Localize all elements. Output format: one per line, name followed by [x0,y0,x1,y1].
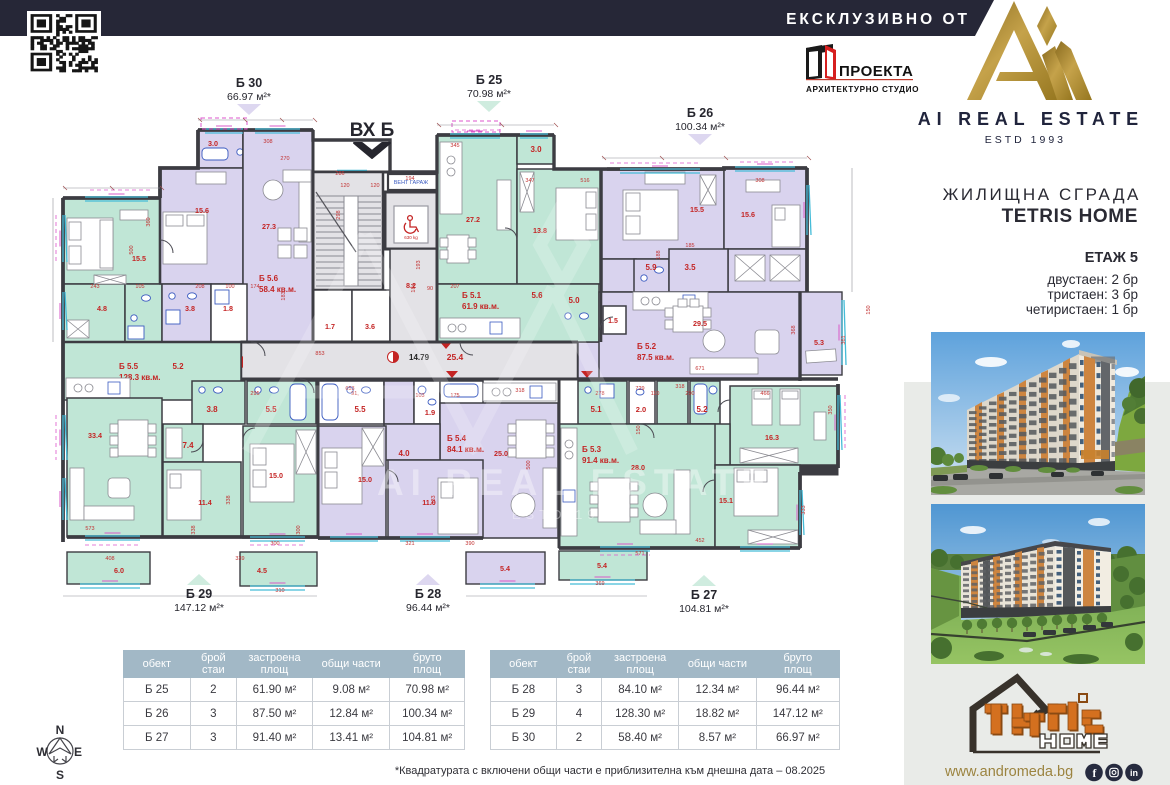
svg-text:6.0: 6.0 [114,566,124,575]
svg-text:Б 25: Б 25 [476,73,502,87]
svg-text:338: 338 [191,525,197,534]
svg-text:15.6: 15.6 [195,206,209,215]
svg-text:5.3: 5.3 [814,338,824,347]
svg-text:188: 188 [656,250,662,259]
svg-text:90: 90 [427,286,433,292]
svg-text:Б 28: Б 28 [415,587,441,601]
svg-text:4.0: 4.0 [398,449,410,458]
svg-text:105: 105 [135,284,144,290]
svg-text:W: W [36,745,48,759]
svg-text:194: 194 [405,176,414,182]
svg-text:243: 243 [90,284,99,290]
svg-text:15.0: 15.0 [269,471,283,480]
svg-text:100.34 м²*: 100.34 м²* [675,121,725,133]
svg-text:Б 5.6: Б 5.6 [259,274,279,283]
svg-text:100: 100 [225,284,234,290]
svg-text:571: 571 [635,551,644,557]
svg-text:120: 120 [370,183,379,189]
svg-text:270: 270 [280,156,289,162]
svg-text:174: 174 [250,284,259,290]
svg-text:368: 368 [791,325,797,334]
svg-text:Б 27: Б 27 [691,588,717,602]
svg-text:ВХ Б: ВХ Б [350,120,395,141]
svg-text:318: 318 [515,388,524,394]
svg-text:70.98 м²*: 70.98 м²* [467,88,511,100]
svg-text:3.8: 3.8 [185,304,195,313]
svg-text:347: 347 [525,178,534,184]
svg-text:f: f [1092,768,1096,780]
svg-text:853: 853 [315,351,324,357]
svg-text:361: 361 [841,335,847,344]
svg-text:4.8: 4.8 [97,304,107,313]
svg-text:120: 120 [340,183,349,189]
svg-text:516: 516 [580,178,589,184]
svg-text:185: 185 [685,243,694,249]
svg-text:7.4: 7.4 [182,441,194,450]
svg-text:96.44 м²*: 96.44 м²* [406,602,450,614]
svg-text:S: S [56,768,64,782]
svg-text:4.5: 4.5 [257,566,267,575]
svg-text:Б 30: Б 30 [236,76,262,90]
svg-text:Б 5.3: Б 5.3 [582,445,602,454]
svg-text:27.3: 27.3 [262,222,276,231]
svg-text:29.5: 29.5 [693,319,707,328]
svg-text:2.0: 2.0 [636,405,646,414]
svg-text:5.4: 5.4 [597,561,607,570]
svg-text:25.4: 25.4 [447,352,464,362]
svg-text:318: 318 [675,384,684,390]
svg-text:183: 183 [281,291,287,300]
svg-text:390: 390 [465,541,474,547]
svg-text:308: 308 [263,139,272,145]
svg-text:193: 193 [416,260,422,269]
svg-text:16.3: 16.3 [765,433,779,442]
svg-text:466: 466 [760,391,769,397]
svg-text:630 kg: 630 kg [404,235,418,240]
svg-text:573: 573 [85,526,94,532]
svg-text:300: 300 [270,541,279,547]
svg-text:33.4: 33.4 [88,431,102,440]
svg-text:333: 333 [801,505,807,514]
svg-text:345: 345 [450,143,459,149]
svg-text:369: 369 [595,581,604,587]
svg-text:360: 360 [146,217,152,226]
svg-text:104.81 м²*: 104.81 м²* [679,603,729,615]
svg-text:3.5: 3.5 [684,263,696,272]
svg-text:5.9: 5.9 [645,263,657,272]
svg-text:298: 298 [336,210,342,219]
svg-text:5.2: 5.2 [172,362,184,371]
svg-text:N: N [56,723,65,737]
svg-text:Б 26: Б 26 [687,106,713,120]
svg-text:321: 321 [405,541,414,547]
svg-text:ESTD 1993: ESTD 1993 [512,507,624,522]
svg-text:290: 290 [685,391,694,397]
svg-text:Б 5.5: Б 5.5 [119,362,139,371]
svg-text:Б 5.2: Б 5.2 [637,342,657,351]
svg-text:5.4: 5.4 [500,564,510,573]
svg-text:1.8: 1.8 [223,304,233,313]
svg-text:729: 729 [635,386,644,392]
svg-text:15.6: 15.6 [741,210,755,219]
svg-text:E: E [74,745,82,759]
svg-text:207: 207 [450,284,459,290]
svg-text:110: 110 [651,391,660,397]
svg-text:3.0: 3.0 [530,145,542,154]
svg-text:150: 150 [636,425,642,434]
svg-text:3.0: 3.0 [208,139,218,148]
svg-text:310: 310 [275,588,284,594]
svg-text:Б 29: Б 29 [186,587,212,601]
svg-text:350: 350 [828,405,834,414]
svg-text:Б 5.1: Б 5.1 [462,291,482,300]
svg-text:408: 408 [105,556,114,562]
svg-text:25.0: 25.0 [494,449,508,458]
svg-text:452: 452 [695,538,704,544]
svg-text:3.8: 3.8 [206,405,218,414]
svg-text:300: 300 [296,525,302,534]
svg-text:295: 295 [250,391,259,397]
svg-text:66.97 м²*: 66.97 м²* [227,91,271,103]
svg-text:5.1: 5.1 [590,405,602,414]
svg-text:147.12 м²*: 147.12 м²* [174,602,224,614]
svg-text:5.5: 5.5 [354,405,366,414]
svg-text:5.2: 5.2 [696,405,708,414]
svg-text:671: 671 [695,366,704,372]
svg-text:87.5 кв.м.: 87.5 кв.м. [637,353,674,362]
svg-text:184: 184 [411,283,417,292]
svg-text:27.2: 27.2 [466,215,480,224]
svg-text:500: 500 [129,245,135,254]
svg-text:3.6: 3.6 [365,322,375,331]
svg-text:338: 338 [226,495,232,504]
svg-text:308: 308 [755,178,764,184]
svg-text:11.4: 11.4 [198,498,212,507]
svg-text:5.0: 5.0 [568,296,580,305]
svg-text:150: 150 [866,305,872,314]
svg-text:339: 339 [235,556,244,562]
svg-text:1.9: 1.9 [425,408,435,417]
svg-text:in: in [1130,768,1138,778]
svg-text:1.7: 1.7 [325,322,335,331]
svg-text:58.4 кв.м.: 58.4 кв.м. [259,285,296,294]
svg-text:61.9 кв.м.: 61.9 кв.м. [462,302,499,311]
svg-text:208: 208 [195,284,204,290]
svg-text:1.5: 1.5 [608,318,618,325]
svg-text:AI REAL ESTATE: AI REAL ESTATE [377,462,773,503]
svg-text:286: 286 [335,171,344,177]
svg-text:15.5: 15.5 [690,205,704,214]
svg-text:15.0: 15.0 [358,475,372,484]
